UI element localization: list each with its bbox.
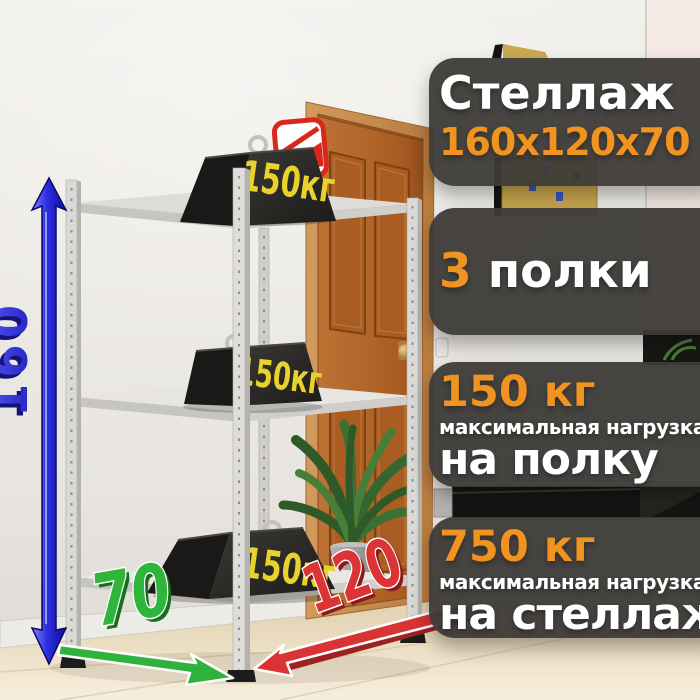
door-hinge (436, 338, 448, 357)
shelves-label: полки (488, 244, 652, 299)
shelf-load-value: 150 кг (439, 371, 700, 414)
svg-text:160: 160 (0, 299, 39, 417)
background-shelf-plant (643, 330, 700, 365)
info-panel-rack-load: 750 кг максимальная нагрузка на стеллаж (429, 517, 700, 638)
depth-dimension-label: 70 70 (90, 547, 177, 648)
info-panel-shelf-load: 150 кг максимальная нагрузка на полку (429, 362, 700, 487)
rack-load-value: 750 кг (439, 526, 700, 569)
shelves-count: 3 (439, 244, 472, 299)
info-panel-title: Стеллаж 160х120х70 (429, 58, 700, 186)
product-title: Стеллаж (439, 70, 700, 117)
info-panel-shelves: 3 полки (429, 208, 700, 335)
rack-load-target: на стеллаж (439, 593, 700, 638)
product-card: 150кг 150кг 150кг (0, 0, 700, 700)
background-desk (434, 486, 700, 518)
height-dimension-label: 160 160 (0, 299, 39, 421)
svg-text:70: 70 (90, 547, 173, 644)
product-dimensions: 160х120х70 (439, 123, 700, 161)
shelf-load-target: на полку (439, 438, 700, 483)
